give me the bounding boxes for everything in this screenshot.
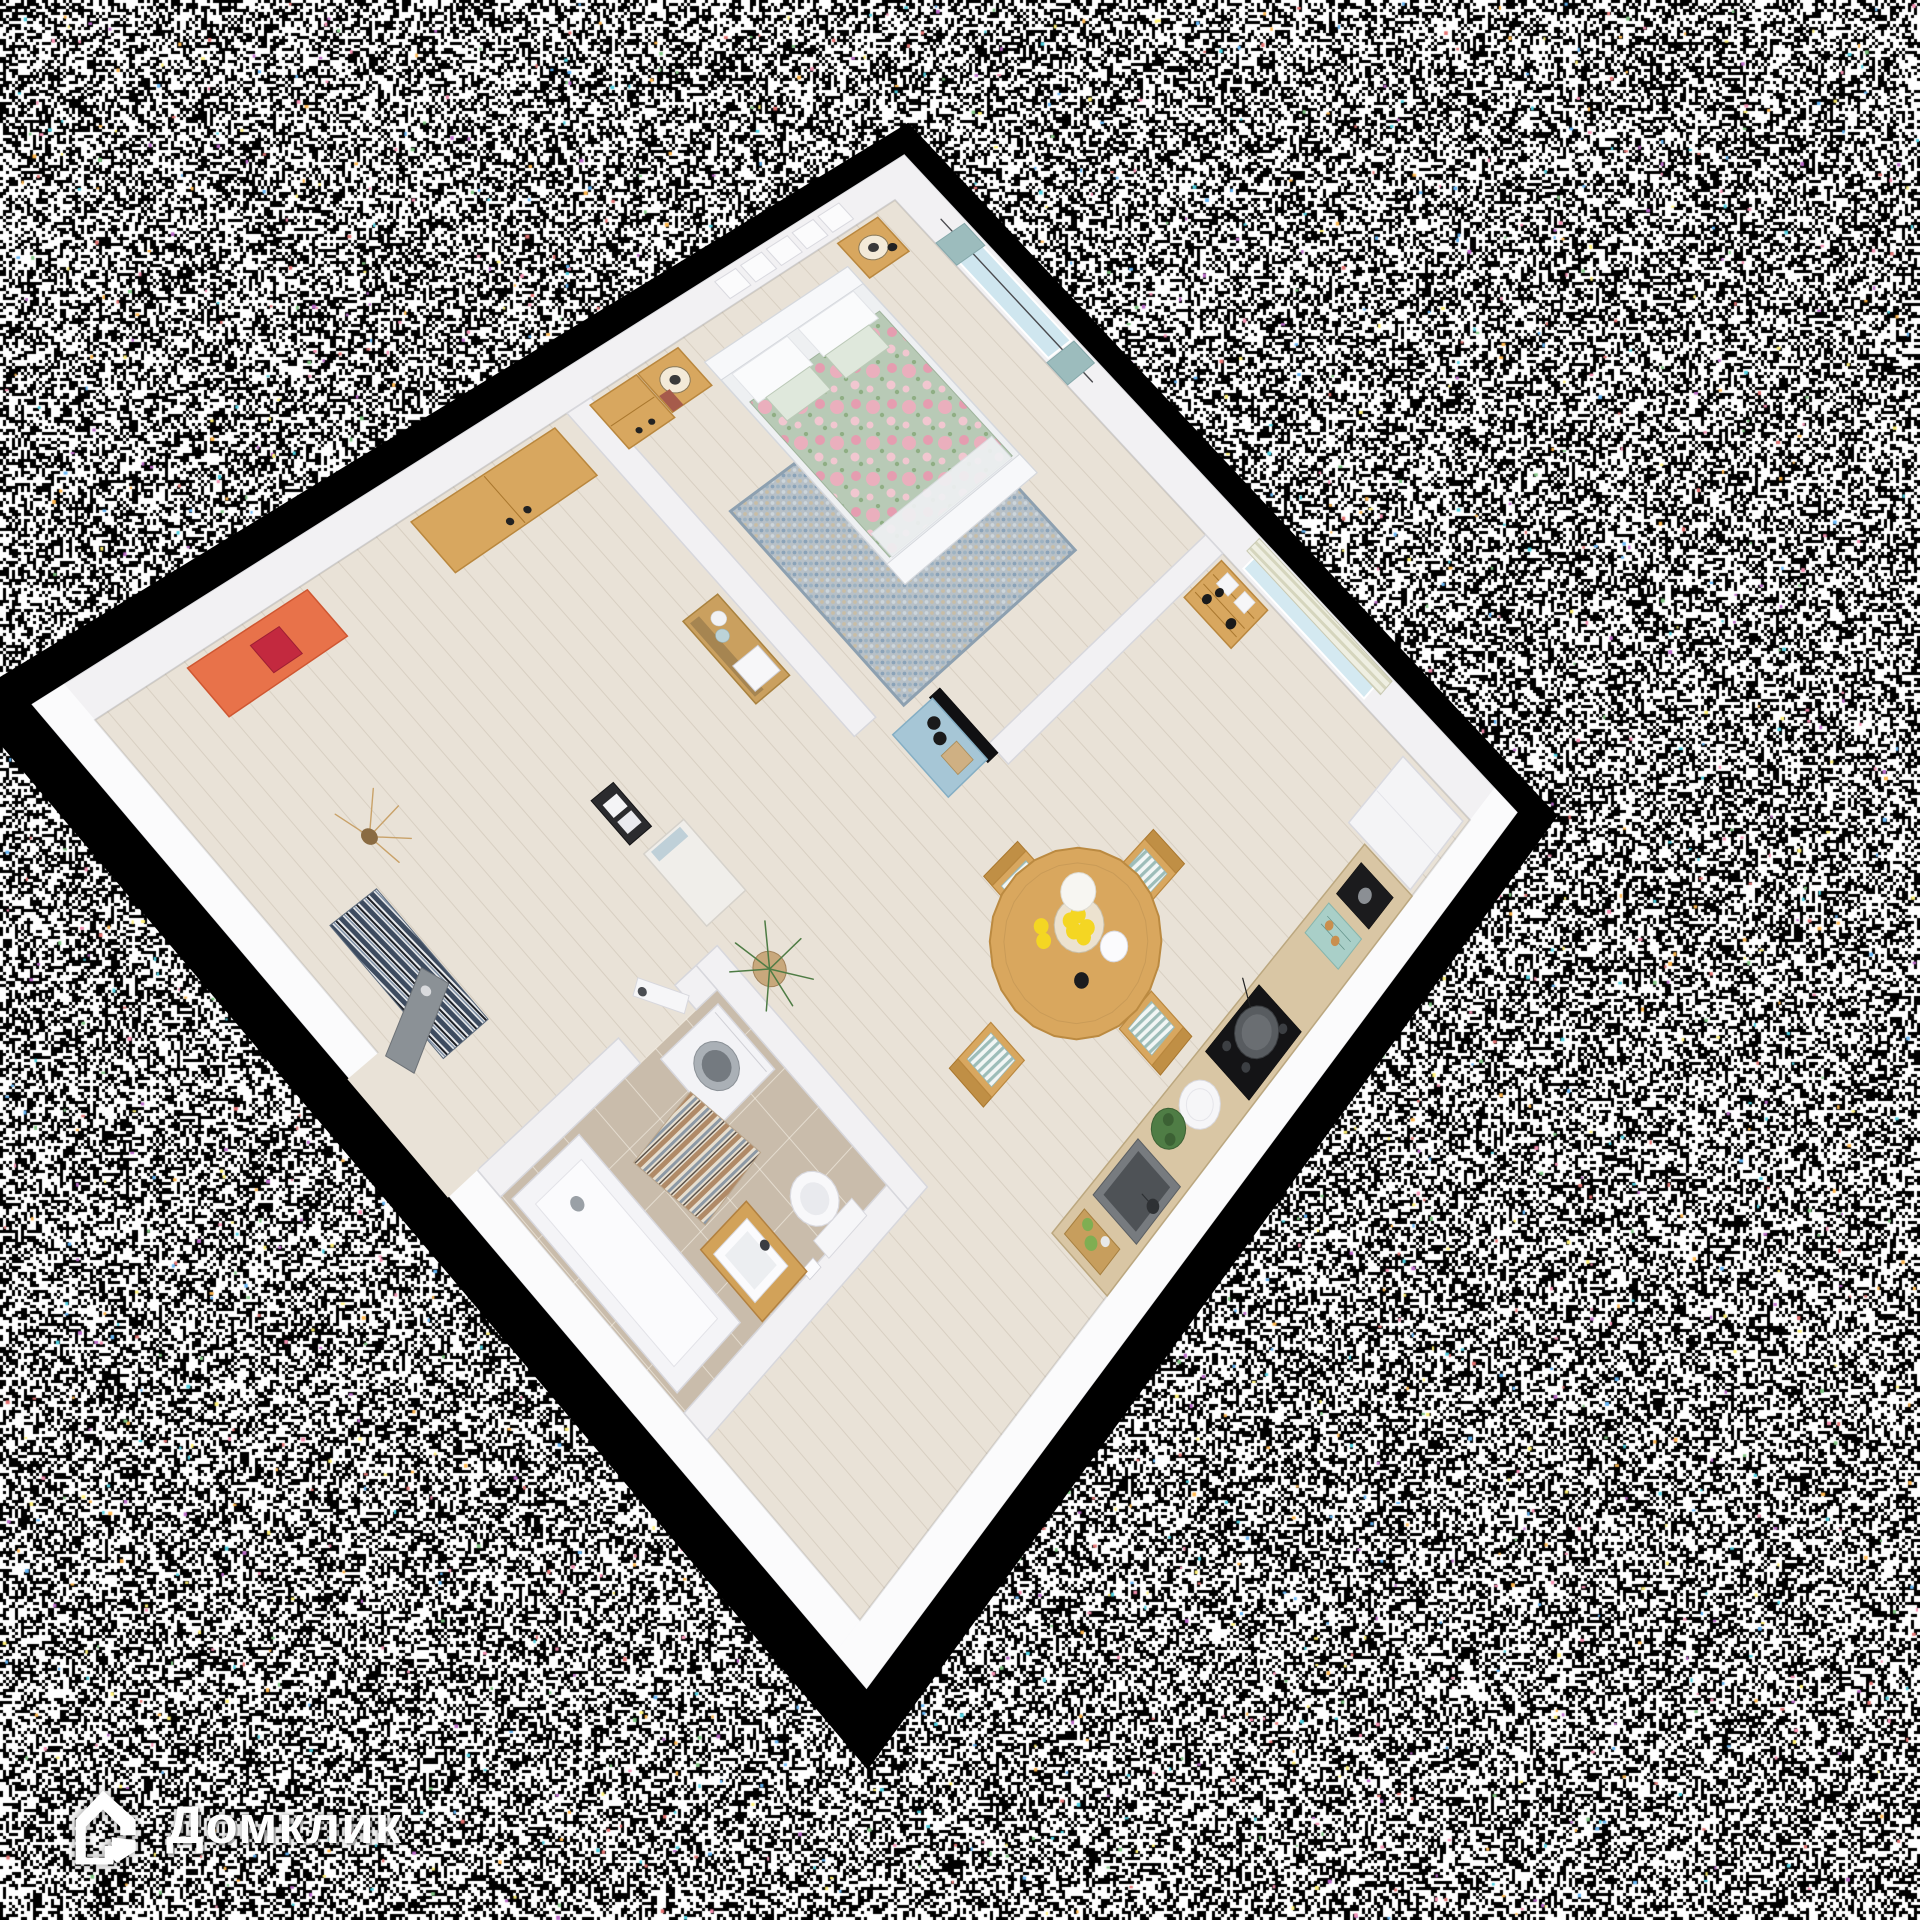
round-dining-table: [990, 848, 1162, 1040]
brand-logo: Домклик: [60, 1782, 402, 1868]
domclick-house-icon: [60, 1782, 146, 1868]
plate-stack: [1179, 1080, 1220, 1129]
floorplan-3d-render: [0, 0, 1920, 1920]
counter-plant: [1151, 1108, 1185, 1149]
brand-logo-text: Домклик: [166, 1795, 402, 1856]
